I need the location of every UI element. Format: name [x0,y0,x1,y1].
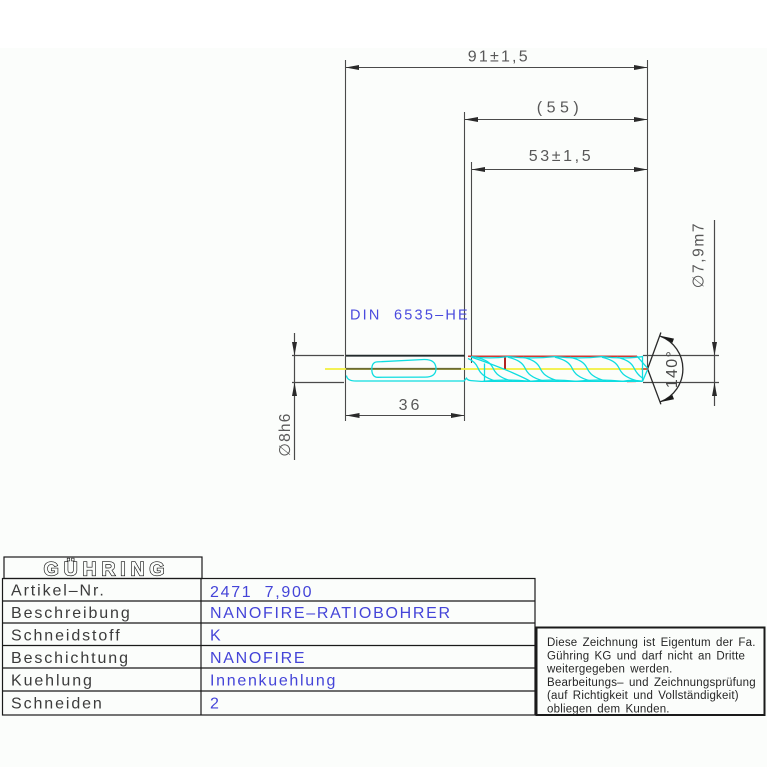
svg-text:K: K [210,628,222,645]
svg-text:DIN 6535–HE: DIN 6535–HE [350,308,470,324]
svg-text:NANOFIRE: NANOFIRE [210,650,306,667]
svg-text:Gühring KG und darf nicht an D: Gühring KG und darf nicht an Dritte [547,650,745,662]
svg-text:Schneiden: Schneiden [11,696,104,713]
svg-text:(auf Richtigkeit und Vollständ: (auf Richtigkeit und Vollständigkeit) [547,690,739,702]
svg-text:weitergegeben werden.: weitergegeben werden. [546,664,673,676]
svg-text:(55): (55) [537,100,583,117]
svg-text:Diese Zeichnung ist Eigentum d: Diese Zeichnung ist Eigentum der Fa. [547,637,756,649]
svg-text:∅7,9m7: ∅7,9m7 [691,222,708,288]
svg-text:Bearbeitungs– und Zeichnungspr: Bearbeitungs– und Zeichnungsprüfung [547,677,756,689]
svg-text:∅8h6: ∅8h6 [277,412,294,456]
svg-text:obliegen dem Kunden.: obliegen dem Kunden. [547,704,670,716]
svg-text:2471 7,900: 2471 7,900 [210,584,313,601]
svg-text:Schneidstoff: Schneidstoff [11,628,122,645]
svg-text:Beschichtung: Beschichtung [11,650,130,667]
svg-text:Artikel–Nr.: Artikel–Nr. [11,583,106,600]
svg-text:2: 2 [210,696,221,713]
svg-text:Kuehlung: Kuehlung [11,673,94,690]
svg-text:Innenkuehlung: Innenkuehlung [210,673,337,690]
svg-text:GÜHRING: GÜHRING [44,558,170,581]
svg-text:NANOFIRE–RATIOBOHRER: NANOFIRE–RATIOBOHRER [210,605,452,622]
svg-text:53±1,5: 53±1,5 [529,148,593,165]
svg-text:Beschreibung: Beschreibung [11,605,132,622]
svg-text:140°: 140° [664,350,681,388]
svg-text:91±1,5: 91±1,5 [468,49,530,66]
svg-text:36: 36 [399,397,423,414]
